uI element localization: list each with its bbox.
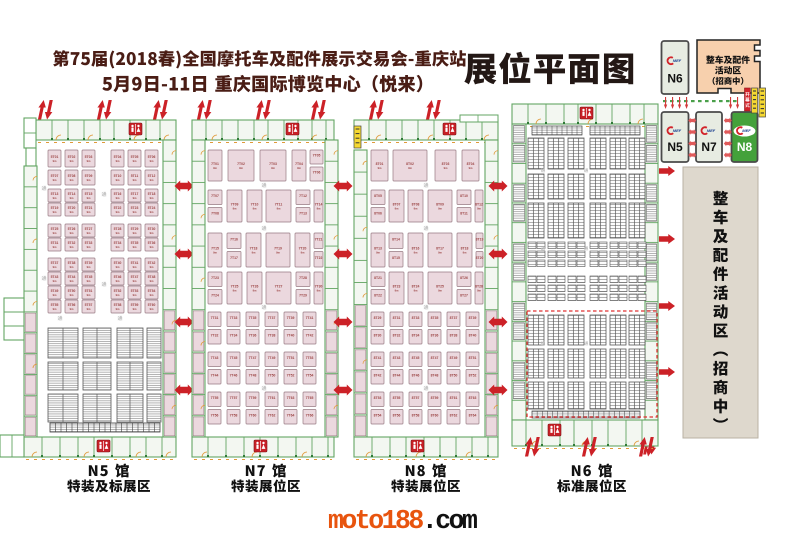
- svg-text:5T45: 5T45: [85, 275, 93, 279]
- svg-text:7T42: 7T42: [306, 333, 314, 337]
- svg-text:7T19: 7T19: [274, 247, 282, 251]
- svg-text:5T43: 5T43: [51, 275, 59, 279]
- svg-text:7T39: 7T39: [287, 316, 295, 320]
- svg-text:8T64: 8T64: [469, 413, 477, 417]
- svg-text:5T59: 5T59: [131, 303, 139, 307]
- svg-text:5T60: 5T60: [148, 303, 156, 307]
- svg-text:5T53: 5T53: [131, 289, 139, 293]
- svg-text:8T38: 8T38: [450, 333, 458, 337]
- svg-text:7T45: 7T45: [230, 356, 238, 360]
- svg-text:7T08: 7T08: [211, 211, 219, 215]
- svg-text:5T41: 5T41: [131, 261, 139, 265]
- svg-text:5T08: 5T08: [68, 174, 76, 178]
- svg-text:7T33: 7T33: [230, 316, 238, 320]
- svg-text:5T36: 5T36: [148, 241, 156, 245]
- svg-text:5T35: 5T35: [131, 241, 139, 245]
- svg-text:7T41: 7T41: [306, 316, 314, 320]
- svg-text:8T09: 8T09: [436, 203, 444, 207]
- svg-text:8T61: 8T61: [450, 396, 458, 400]
- svg-text:8T20: 8T20: [476, 256, 484, 260]
- svg-text:8T32: 8T32: [393, 333, 401, 337]
- svg-text:7T23: 7T23: [211, 276, 219, 280]
- svg-text:7T13: 7T13: [299, 211, 307, 215]
- svg-text:7T20: 7T20: [299, 247, 307, 251]
- svg-text:7T01: 7T01: [211, 162, 219, 166]
- svg-text:MEF: MEF: [742, 128, 751, 133]
- svg-text:5T18: 5T18: [148, 192, 156, 196]
- svg-text:5T29: 5T29: [131, 227, 139, 231]
- svg-text:8T22: 8T22: [374, 293, 382, 297]
- svg-text:8T46: 8T46: [412, 373, 420, 377]
- svg-text:7T25: 7T25: [231, 285, 239, 289]
- svg-text:8T16: 8T16: [412, 247, 420, 251]
- svg-text:8T49: 8T49: [450, 356, 458, 360]
- svg-text:7T03: 7T03: [269, 162, 277, 166]
- svg-text:N6: N6: [667, 71, 683, 85]
- svg-text:8T13: 8T13: [374, 247, 382, 251]
- svg-text:7T30: 7T30: [315, 285, 323, 289]
- svg-text:8T30: 8T30: [374, 333, 382, 337]
- svg-text:8T34: 8T34: [412, 333, 420, 337]
- svg-text:7T56: 7T56: [211, 413, 219, 417]
- svg-text:8T53: 8T53: [374, 396, 382, 400]
- svg-text:5T34: 5T34: [114, 241, 122, 245]
- svg-text:8T59: 8T59: [431, 396, 439, 400]
- svg-text:8T51: 8T51: [469, 356, 477, 360]
- svg-text:7T58: 7T58: [230, 413, 238, 417]
- svg-text:5T58: 5T58: [114, 303, 122, 307]
- svg-text:7T61: 7T61: [268, 396, 276, 400]
- svg-text:MEF: MEF: [673, 128, 682, 133]
- svg-text:5T13: 5T13: [51, 192, 59, 196]
- svg-text:7T63: 7T63: [287, 396, 295, 400]
- svg-text:5T10: 5T10: [114, 174, 122, 178]
- svg-text:5T54: 5T54: [148, 289, 156, 293]
- svg-text:8T63: 8T63: [469, 396, 477, 400]
- svg-text:7T52: 7T52: [287, 373, 295, 377]
- svg-text:8T03: 8T03: [442, 162, 450, 166]
- svg-text:5T50: 5T50: [68, 289, 76, 293]
- svg-text:8T44: 8T44: [393, 373, 401, 377]
- svg-text:7T28: 7T28: [299, 276, 307, 280]
- svg-text:5T48: 5T48: [148, 275, 156, 279]
- svg-text:8T21: 8T21: [374, 276, 382, 280]
- svg-text:N7: N7: [701, 140, 717, 154]
- svg-text:5T44: 5T44: [68, 275, 76, 279]
- svg-text:8T57: 8T57: [412, 396, 420, 400]
- svg-text:5T55: 5T55: [51, 303, 59, 307]
- svg-text:7T05: 7T05: [313, 154, 321, 158]
- svg-text:8T36: 8T36: [431, 333, 439, 337]
- svg-text:5T25: 5T25: [51, 227, 59, 231]
- svg-text:8T26: 8T26: [460, 276, 468, 280]
- svg-text:5T27: 5T27: [85, 227, 93, 231]
- svg-text:5T30: 5T30: [148, 227, 156, 231]
- svg-text:5T06: 5T06: [148, 155, 156, 159]
- svg-text:5T02: 5T02: [68, 155, 76, 159]
- svg-text:5T26: 5T26: [68, 227, 76, 231]
- svg-text:8T55: 8T55: [393, 396, 401, 400]
- svg-text:8T31: 8T31: [393, 316, 401, 320]
- svg-text:7T44: 7T44: [211, 373, 219, 377]
- svg-text:7T29: 7T29: [299, 293, 307, 297]
- svg-text:5T37: 5T37: [51, 261, 59, 265]
- svg-text:8T47: 8T47: [431, 356, 439, 360]
- svg-text:7T35: 7T35: [249, 316, 257, 320]
- svg-text:5T49: 5T49: [51, 289, 59, 293]
- svg-text:8T48: 8T48: [431, 373, 439, 377]
- svg-text:8T28: 8T28: [475, 285, 483, 289]
- svg-text:8T42: 8T42: [374, 373, 382, 377]
- svg-text:7T06: 7T06: [313, 171, 321, 175]
- svg-text:5T12: 5T12: [148, 174, 156, 178]
- svg-text:8T52: 8T52: [469, 373, 477, 377]
- svg-text:7T50: 7T50: [268, 373, 276, 377]
- svg-text:7T09: 7T09: [231, 203, 239, 207]
- svg-text:5T40: 5T40: [114, 261, 122, 265]
- svg-text:5T42: 5T42: [148, 261, 156, 265]
- svg-text:7T10: 7T10: [251, 203, 259, 207]
- svg-text:5T28: 5T28: [114, 227, 122, 231]
- svg-text:7T53: 7T53: [306, 356, 314, 360]
- svg-text:5T31: 5T31: [51, 241, 59, 245]
- svg-text:5T01: 5T01: [51, 155, 59, 159]
- svg-text:8T15: 8T15: [392, 256, 400, 260]
- svg-text:5T16: 5T16: [114, 192, 122, 196]
- svg-text:8T08: 8T08: [412, 203, 420, 207]
- svg-text:7T38: 7T38: [268, 333, 276, 337]
- svg-text:7T11: 7T11: [275, 203, 283, 207]
- svg-text:7T64: 7T64: [287, 413, 295, 417]
- svg-text:5T14: 5T14: [68, 192, 76, 196]
- svg-text:7T14: 7T14: [315, 203, 323, 207]
- svg-text:8T10: 8T10: [460, 194, 468, 198]
- svg-text:7T15: 7T15: [211, 247, 219, 251]
- svg-text:7T49: 7T49: [268, 356, 276, 360]
- svg-text:7T65: 7T65: [306, 396, 314, 400]
- svg-text:8T56: 8T56: [393, 413, 401, 417]
- svg-text:8T06: 8T06: [374, 211, 382, 215]
- svg-text:5T51: 5T51: [85, 289, 93, 293]
- svg-text:8T12: 8T12: [475, 203, 483, 207]
- svg-text:moto188.com: moto188.com: [328, 506, 477, 536]
- svg-text:7T27: 7T27: [275, 285, 283, 289]
- svg-text:8T19: 8T19: [476, 237, 484, 241]
- svg-text:MEF: MEF: [707, 128, 716, 133]
- svg-text:5T21: 5T21: [85, 206, 93, 210]
- svg-text:7T07: 7T07: [211, 194, 219, 198]
- svg-text:5T32: 5T32: [68, 241, 76, 245]
- svg-text:5T17: 5T17: [131, 192, 139, 196]
- svg-text:8T33: 8T33: [412, 316, 420, 320]
- svg-text:7T16: 7T16: [230, 237, 238, 241]
- svg-text:8T41: 8T41: [374, 356, 382, 360]
- svg-text:8T60: 8T60: [431, 413, 439, 417]
- svg-text:7T47: 7T47: [249, 356, 257, 360]
- svg-text:8T02: 8T02: [406, 162, 414, 166]
- svg-text:5T56: 5T56: [68, 303, 76, 307]
- svg-text:7T21: 7T21: [315, 237, 323, 241]
- svg-text:7T43: 7T43: [211, 356, 219, 360]
- svg-text:5T19: 5T19: [51, 206, 59, 210]
- svg-text:N8: N8: [737, 140, 753, 154]
- svg-text:8T58: 8T58: [412, 413, 420, 417]
- svg-text:7T66: 7T66: [306, 413, 314, 417]
- svg-text:5T09: 5T09: [85, 174, 93, 178]
- svg-text:8T23: 8T23: [393, 285, 401, 289]
- svg-text:7T04: 7T04: [295, 162, 303, 166]
- svg-text:5T04: 5T04: [114, 155, 122, 159]
- svg-text:7T12: 7T12: [299, 194, 307, 198]
- svg-text:7T18: 7T18: [250, 247, 258, 251]
- svg-text:5T11: 5T11: [131, 174, 139, 178]
- svg-text:5T20: 5T20: [68, 206, 76, 210]
- svg-text:5T22: 5T22: [114, 206, 122, 210]
- svg-text:8T14: 8T14: [392, 237, 400, 241]
- svg-text:5T39: 5T39: [85, 261, 93, 265]
- svg-text:8T35: 8T35: [431, 316, 439, 320]
- svg-text:7T55: 7T55: [211, 396, 219, 400]
- svg-text:5T03: 5T03: [85, 155, 93, 159]
- svg-text:MEF: MEF: [673, 58, 682, 63]
- svg-text:7T54: 7T54: [306, 373, 314, 377]
- svg-text:8T05: 8T05: [374, 194, 382, 198]
- svg-text:8T50: 8T50: [450, 373, 458, 377]
- svg-text:7T62: 7T62: [268, 413, 276, 417]
- svg-text:5T57: 5T57: [85, 303, 93, 307]
- svg-text:8T25: 8T25: [436, 285, 444, 289]
- svg-text:8T11: 8T11: [460, 211, 468, 215]
- svg-text:7T02: 7T02: [237, 162, 245, 166]
- svg-text:5T05: 5T05: [131, 155, 139, 159]
- svg-text:8T01: 8T01: [376, 162, 384, 166]
- svg-text:8T62: 8T62: [450, 413, 458, 417]
- svg-text:N5: N5: [667, 140, 683, 154]
- svg-text:8T24: 8T24: [412, 285, 420, 289]
- svg-text:7T34: 7T34: [230, 333, 238, 337]
- svg-text:5T24: 5T24: [148, 206, 156, 210]
- svg-text:7T57: 7T57: [230, 396, 238, 400]
- svg-text:8T29: 8T29: [374, 316, 382, 320]
- svg-text:5T52: 5T52: [114, 289, 122, 293]
- svg-text:7T60: 7T60: [249, 413, 257, 417]
- svg-text:5T07: 5T07: [51, 174, 59, 178]
- svg-text:7T36: 7T36: [249, 333, 257, 337]
- svg-text:7T48: 7T48: [249, 373, 257, 377]
- svg-text:5T23: 5T23: [131, 206, 139, 210]
- svg-text:7T26: 7T26: [251, 285, 259, 289]
- svg-text:7T17: 7T17: [230, 256, 238, 260]
- svg-text:8T18: 8T18: [461, 247, 469, 251]
- svg-text:7T24: 7T24: [211, 293, 219, 297]
- svg-text:7T59: 7T59: [249, 396, 257, 400]
- svg-text:5T38: 5T38: [68, 261, 76, 265]
- svg-text:7T31: 7T31: [211, 316, 219, 320]
- svg-text:7T32: 7T32: [211, 333, 219, 337]
- svg-text:8T07: 8T07: [393, 203, 401, 207]
- svg-text:5T15: 5T15: [85, 192, 93, 196]
- svg-text:7T37: 7T37: [268, 316, 276, 320]
- svg-text:8T39: 8T39: [469, 316, 477, 320]
- svg-text:7T40: 7T40: [287, 333, 295, 337]
- svg-text:5T33: 5T33: [85, 241, 93, 245]
- svg-text:8T17: 8T17: [436, 247, 444, 251]
- svg-text:8T40: 8T40: [469, 333, 477, 337]
- svg-text:5T46: 5T46: [114, 275, 122, 279]
- svg-text:8T37: 8T37: [450, 316, 458, 320]
- svg-text:7T46: 7T46: [230, 373, 238, 377]
- svg-text:8T54: 8T54: [374, 413, 382, 417]
- svg-text:5T47: 5T47: [131, 275, 139, 279]
- svg-text:8T45: 8T45: [412, 356, 420, 360]
- svg-text:8T43: 8T43: [393, 356, 401, 360]
- svg-text:8T27: 8T27: [460, 293, 468, 297]
- svg-text:7T22: 7T22: [315, 256, 323, 260]
- svg-text:7T51: 7T51: [287, 356, 295, 360]
- svg-text:8T04: 8T04: [467, 162, 475, 166]
